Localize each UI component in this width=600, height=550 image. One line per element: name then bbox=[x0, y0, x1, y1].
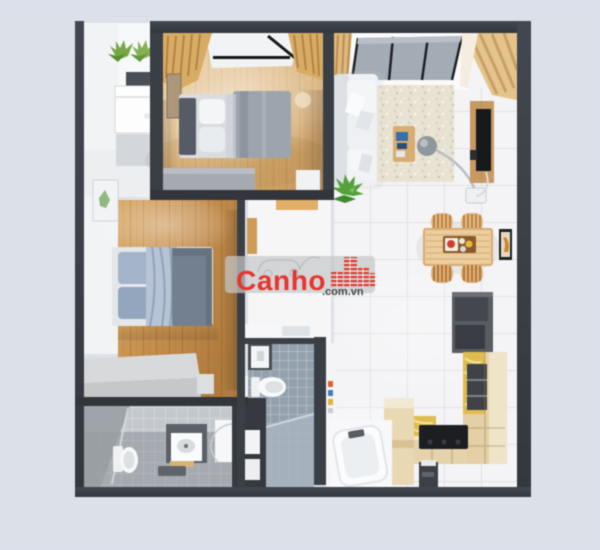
svg-text:Canho: Canho bbox=[236, 265, 326, 296]
svg-text:.com.vn: .com.vn bbox=[322, 286, 364, 298]
